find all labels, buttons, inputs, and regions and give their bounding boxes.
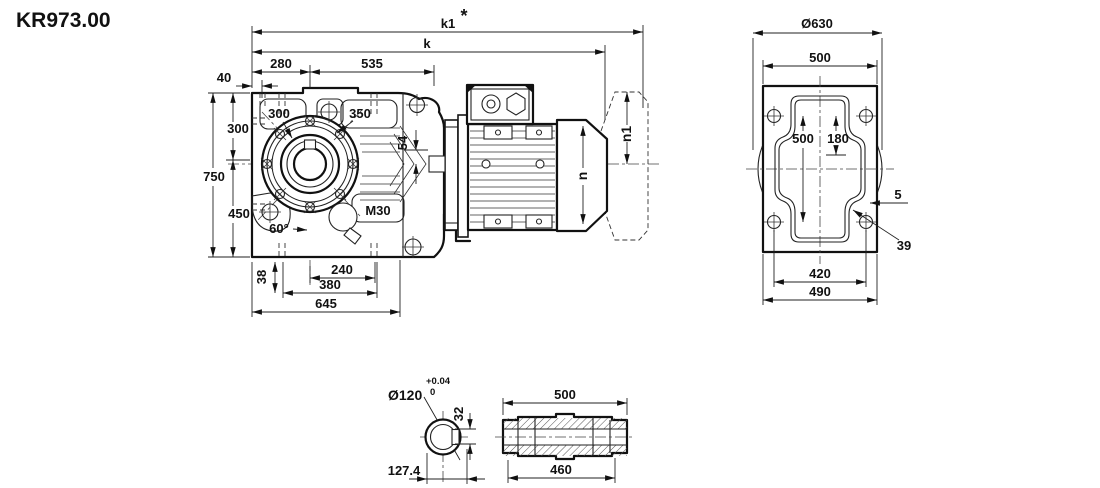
dim-39-label: 39 [897, 238, 911, 253]
dim-490-label: 490 [809, 284, 831, 299]
dim-40-label: 40 [217, 70, 231, 85]
dim-k1-label: k1 [441, 16, 455, 31]
dim-535-label: 535 [361, 56, 383, 71]
dim-5-label: 5 [894, 187, 901, 202]
motor-body [468, 124, 557, 230]
dim-n-label: n [574, 172, 590, 181]
dim-380-label: 380 [319, 277, 341, 292]
dim-60deg-label: 60° [269, 221, 289, 236]
callout-m30-label: M30 [365, 203, 390, 218]
dim-460-label: 460 [550, 462, 572, 477]
dim-54-label: 54 [395, 135, 410, 150]
dim-38-label: 38 [254, 270, 269, 284]
bore-keyway [452, 430, 459, 445]
dim-k-label: k [423, 36, 431, 51]
dim-500-top-label: 500 [809, 50, 831, 65]
callout-350-label: 350 [349, 106, 371, 121]
hatch-top [503, 418, 627, 429]
callout-300-label: 300 [268, 106, 290, 121]
tolerance-upper-label: +0.04 [426, 376, 451, 387]
dim-630-label: Ø630 [801, 16, 833, 31]
end-view: Ø630 500 500 180 420 490 5 39 [746, 16, 911, 305]
motor-flange [458, 115, 468, 237]
dim-d120-label: Ø120 [388, 387, 422, 403]
drawing-title: KR973.00 [16, 9, 111, 32]
terminal-box [467, 85, 533, 124]
dim-300-left-label: 300 [227, 121, 249, 136]
dim-500-inner-label: 500 [792, 131, 814, 146]
dim-32-label: 32 [451, 407, 466, 421]
dim-280-label: 280 [270, 56, 292, 71]
dim-180-label: 180 [827, 131, 849, 146]
drawing-page: KR973.00 [0, 0, 1100, 488]
dim-127-label: 127.4 [388, 463, 421, 478]
dim-500-sleeve-label: 500 [554, 387, 576, 402]
input-shaft-cover [429, 156, 445, 172]
dim-420-label: 420 [809, 266, 831, 281]
hollow-shaft-bore-view: Ø120 +0.04 0 32 127.4 [388, 376, 485, 484]
motor-side-view: n n1 [429, 85, 648, 241]
shaft-sleeve-view: 500 460 [495, 387, 635, 483]
adapter-housing [445, 120, 458, 230]
dim-750-label: 750 [203, 169, 225, 184]
dim-k1-asterisk: * [460, 6, 467, 26]
dim-450-label: 450 [228, 206, 250, 221]
technical-drawing: KR973.00 [0, 0, 1100, 488]
dim-645-label: 645 [315, 296, 337, 311]
tolerance-lower-label: 0 [430, 387, 435, 398]
dim-240-label: 240 [331, 262, 353, 277]
keyway [305, 140, 316, 149]
dim-n1-label: n1 [618, 126, 634, 143]
hatch-bottom [503, 445, 627, 456]
